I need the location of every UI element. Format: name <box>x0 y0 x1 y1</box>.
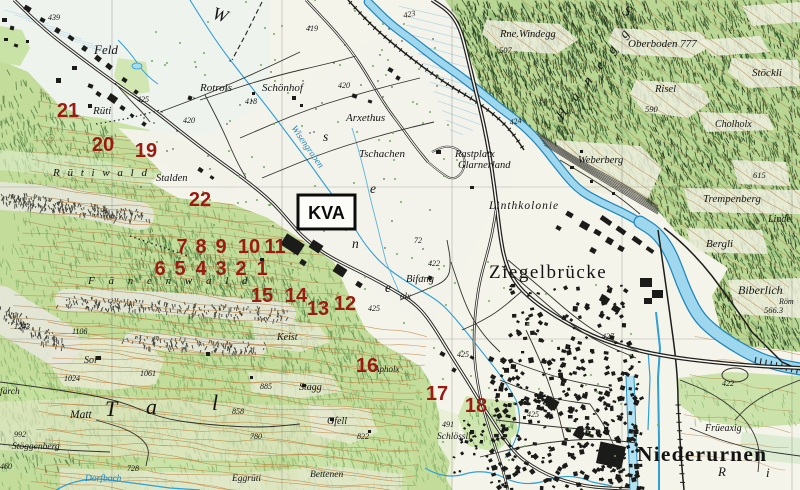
svg-text:9: 9 <box>215 236 226 258</box>
svg-text:425: 425 <box>527 410 539 419</box>
svg-text:822: 822 <box>357 432 369 441</box>
svg-text:Schönhof: Schönhof <box>262 82 305 94</box>
svg-text:8: 8 <box>195 236 206 258</box>
svg-text:11: 11 <box>264 236 285 258</box>
svg-text:F ä n e n w a l d: F ä n e n w a l d <box>87 275 253 287</box>
svg-text:Rotrois: Rotrois <box>199 82 232 94</box>
svg-text:Risel: Risel <box>654 84 676 95</box>
svg-text:Stalden: Stalden <box>156 173 188 184</box>
svg-text:Linthkolonie: Linthkolonie <box>488 200 559 212</box>
svg-text:460: 460 <box>0 462 12 471</box>
svg-text:Oberboden 777: Oberboden 777 <box>628 38 697 50</box>
svg-text:7: 7 <box>176 236 187 258</box>
svg-text:Dorfbach: Dorfbach <box>84 473 122 484</box>
svg-text:728: 728 <box>127 464 139 473</box>
svg-text:4: 4 <box>195 258 207 280</box>
svg-text:Weberberg: Weberberg <box>578 155 623 166</box>
svg-text:780: 780 <box>250 432 262 441</box>
svg-text:858: 858 <box>232 407 244 416</box>
svg-text:Keist: Keist <box>276 332 298 343</box>
svg-text:885: 885 <box>260 382 272 391</box>
svg-text:Sol: Sol <box>84 355 97 366</box>
svg-text:19: 19 <box>135 140 157 162</box>
svg-text:Matt: Matt <box>69 409 93 421</box>
svg-text:5: 5 <box>174 258 185 280</box>
svg-text:3: 3 <box>215 258 226 280</box>
svg-text:17: 17 <box>426 383 448 405</box>
svg-text:566.3: 566.3 <box>764 305 783 315</box>
svg-text:R ü t i w a l d: R ü t i w a l d <box>52 167 149 179</box>
svg-text:Bettenen: Bettenen <box>310 470 343 480</box>
svg-text:Biberlich: Biberlich <box>738 283 783 297</box>
svg-text:Bifang: Bifang <box>406 274 434 285</box>
svg-text:Früeaxig: Früeaxig <box>704 423 742 434</box>
svg-text:KVA: KVA <box>308 203 345 223</box>
svg-text:439: 439 <box>48 13 60 22</box>
svg-text:Ziegelbrücke: Ziegelbrücke <box>489 262 607 283</box>
svg-text:420: 420 <box>183 116 195 125</box>
svg-text:14: 14 <box>285 285 308 307</box>
svg-text:1061: 1061 <box>140 369 156 378</box>
svg-text:s: s <box>323 129 328 144</box>
svg-text:21: 21 <box>57 100 79 122</box>
svg-text:R: R <box>717 464 726 479</box>
svg-text:615: 615 <box>753 170 766 180</box>
svg-text:n: n <box>352 236 359 251</box>
svg-text:72: 72 <box>414 236 422 245</box>
svg-text:418: 418 <box>245 97 257 106</box>
svg-text:Rastplatx: Rastplatx <box>454 149 495 160</box>
svg-text:16: 16 <box>356 355 378 377</box>
svg-text:422: 422 <box>428 259 440 268</box>
svg-text:Niederurnen: Niederurnen <box>637 442 767 466</box>
svg-text:Glarnerland: Glarnerland <box>458 160 511 171</box>
svg-text:Schlössli: Schlössli <box>437 432 471 442</box>
svg-text:olx: olx <box>400 291 411 301</box>
svg-text:590: 590 <box>645 104 659 114</box>
svg-text:1: 1 <box>256 258 267 280</box>
svg-text:425: 425 <box>368 304 380 313</box>
svg-text:a: a <box>146 394 157 419</box>
svg-text:1024: 1024 <box>64 374 80 383</box>
svg-text:2: 2 <box>235 258 246 280</box>
svg-text:Feld: Feld <box>93 42 118 57</box>
svg-text:Bergli: Bergli <box>706 238 733 250</box>
svg-text:420: 420 <box>338 81 350 90</box>
svg-text:färch: färch <box>0 386 20 397</box>
svg-text:i: i <box>766 465 770 480</box>
svg-text:Arxethus: Arxethus <box>345 112 385 124</box>
svg-text:427: 427 <box>602 332 615 341</box>
svg-text:Tschachen: Tschachen <box>359 148 406 160</box>
svg-text:Stöggenberg: Stöggenberg <box>12 442 60 452</box>
svg-text:Trempenberg: Trempenberg <box>703 193 761 205</box>
svg-text:1243: 1243 <box>14 322 30 331</box>
svg-text:Rne.Windegg: Rne.Windegg <box>499 29 556 40</box>
svg-text:10: 10 <box>238 236 260 258</box>
svg-text:1106: 1106 <box>72 327 87 336</box>
svg-text:491: 491 <box>442 420 454 429</box>
svg-text:Cholholx: Cholholx <box>715 119 752 130</box>
svg-text:e: e <box>370 181 376 196</box>
svg-text:12: 12 <box>334 293 356 315</box>
svg-text:e: e <box>385 280 391 295</box>
svg-text:Stagg: Stagg <box>299 382 322 393</box>
svg-text:419: 419 <box>306 24 318 33</box>
svg-text:Linde: Linde <box>767 214 791 225</box>
svg-text:Eggrüti: Eggrüti <box>231 474 261 484</box>
svg-text:422: 422 <box>722 379 734 388</box>
svg-text:15: 15 <box>251 285 273 307</box>
svg-text:425: 425 <box>137 95 149 104</box>
svg-text:20: 20 <box>92 134 114 156</box>
svg-text:6: 6 <box>154 258 165 280</box>
svg-text:22: 22 <box>189 189 211 211</box>
svg-text:l: l <box>212 390 218 415</box>
svg-text:507: 507 <box>499 45 513 55</box>
svg-text:Stöckli: Stöckli <box>752 67 782 79</box>
svg-text:Gfell: Gfell <box>327 416 347 427</box>
svg-text:T: T <box>105 396 119 421</box>
svg-text:13: 13 <box>307 298 329 320</box>
svg-text:18: 18 <box>465 395 487 417</box>
svg-text:Rüti: Rüti <box>92 105 111 117</box>
svg-text:992: 992 <box>14 430 26 439</box>
svg-text:425: 425 <box>457 350 469 359</box>
